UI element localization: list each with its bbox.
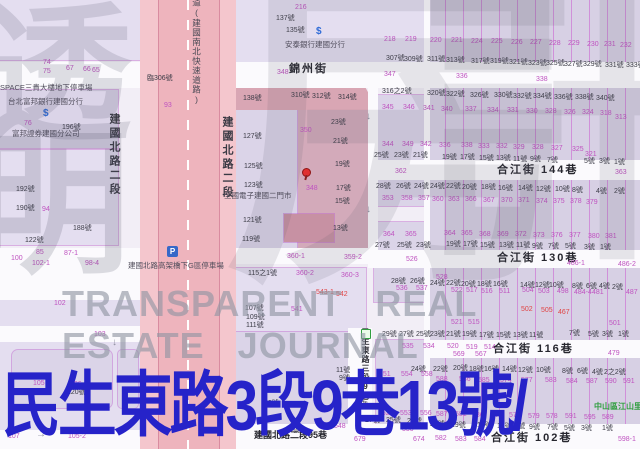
- house-number-label: 14號: [518, 185, 533, 192]
- house-number-label: 25號: [374, 152, 389, 159]
- house-number-label: 23號: [416, 242, 431, 249]
- house-number-label: 3號: [581, 425, 592, 432]
- parcel-number-label: 481: [592, 289, 604, 296]
- parcel-number-label: 344: [382, 141, 394, 148]
- parcel-number-label: 371: [518, 197, 530, 204]
- house-number-label: 12號: [536, 186, 551, 193]
- parcel-number-label: 543-1: [316, 289, 334, 296]
- house-number-label: 135號: [286, 27, 305, 34]
- parcel-number-label: 98-4: [85, 260, 99, 267]
- house-number-label: 19號: [446, 241, 461, 248]
- house-number-label: 11號: [513, 156, 527, 163]
- road-label-vertical: 道(建國南北快速道路): [192, 0, 201, 106]
- house-number-label: 336號: [554, 94, 573, 101]
- poi-label: 全國電子建國二門市: [224, 192, 292, 200]
- parcel-number-label: 221: [451, 37, 463, 44]
- direction-arrow: ↓: [366, 205, 371, 215]
- parcel-number-label: 578: [546, 413, 558, 420]
- house-number-label: 17號: [463, 241, 478, 248]
- house-number-label: 27號: [375, 242, 390, 249]
- parcel-number-label: 598-1: [618, 436, 636, 443]
- house-number-label: 4號: [596, 188, 607, 195]
- house-number-label: 1號: [614, 159, 625, 166]
- house-number-label: 138號: [243, 95, 262, 102]
- house-number-label: 7號: [547, 157, 558, 164]
- parcel-number-label: 590: [605, 378, 617, 385]
- district-label: 中山區江山里: [594, 403, 640, 411]
- house-number-label: 17號: [479, 332, 494, 339]
- house-number-label: 322號: [446, 91, 465, 98]
- parcel-number-label: 331: [507, 107, 519, 114]
- parcel-number-label: 376: [551, 232, 563, 239]
- house-number-label: 9號: [532, 243, 543, 250]
- house-number-label: 6號: [577, 368, 588, 375]
- pushpin-icon: [301, 168, 311, 180]
- house-number-label: 190號: [16, 205, 35, 212]
- bank-dollar-icon: $: [43, 108, 49, 119]
- house-number-label: 2之2號: [604, 369, 626, 376]
- house-number-label: 338號: [575, 94, 594, 101]
- parcel-number-label: 467: [558, 309, 570, 316]
- parcel-number-label: 579: [528, 413, 540, 420]
- parcel-number-label: 353: [382, 195, 394, 202]
- parcel-number-label: 337: [465, 106, 477, 113]
- parcel-number-label: 364: [444, 230, 456, 237]
- parcel-number-label: 348: [306, 185, 318, 192]
- house-number-label: 23號: [331, 119, 346, 126]
- parcel-number-label: 541: [291, 306, 303, 313]
- house-number-label: 326號: [470, 92, 489, 99]
- house-number-label: 119號: [242, 236, 260, 243]
- parcel-number-label: 220: [430, 37, 442, 44]
- house-number-label: 22號: [446, 183, 461, 190]
- house-number-label: 310號: [291, 92, 310, 99]
- parcel-number-label: 330: [526, 108, 538, 115]
- parcel-number-label: 326: [564, 109, 576, 116]
- parcel-number-label: 350: [300, 127, 312, 134]
- parcel-number-label: 358: [401, 195, 413, 202]
- house-number-label: 3號: [599, 158, 610, 165]
- parcel-number-label: 370: [501, 197, 513, 204]
- parcel-number-label: 368: [479, 231, 491, 238]
- house-number-label: 314號: [338, 94, 357, 101]
- parcel-number-label: 486-2: [618, 261, 636, 268]
- house-number-label: 316之2號: [382, 88, 412, 95]
- house-number-label: 317號: [471, 58, 490, 65]
- house-number-label: 107號: [245, 305, 264, 312]
- parcel-number-label: 225: [491, 38, 503, 45]
- house-number-label: 19號: [442, 154, 457, 161]
- parcel-number-label: 360: [432, 196, 444, 203]
- house-number-label: 313號: [446, 57, 465, 64]
- parcel-number-label: 369: [497, 231, 509, 238]
- parcel-number-label: 589: [602, 414, 614, 421]
- house-number-label: 323號: [528, 60, 547, 67]
- house-number-label: 15號: [496, 332, 511, 339]
- parcel-number-label: 345: [382, 104, 394, 111]
- map-canvas[interactable]: 7475676665SPACE三貴大樓地下停車場台北富邦銀行建國分行76196號…: [0, 0, 640, 449]
- parcel-number-label: 381: [605, 233, 617, 240]
- parcel-number-label: 357: [418, 195, 430, 202]
- house-number-label: 192號: [16, 186, 35, 193]
- house-number-label: 1號: [600, 244, 611, 251]
- house-number-label: 3號: [584, 244, 595, 251]
- parking-icon: P: [167, 246, 178, 257]
- house-number-label: 16號: [498, 185, 513, 192]
- house-number-label: 8號: [562, 368, 573, 375]
- house-number-label: 109號: [246, 314, 265, 321]
- parcel-number-label: 503: [538, 288, 550, 295]
- parcel-number-label: 102-1: [32, 260, 50, 267]
- house-number-label: 5號: [564, 425, 575, 432]
- parcel-number-label: 318: [600, 110, 612, 117]
- house-number-label: 311號: [427, 56, 445, 63]
- house-number-label: 332號: [513, 93, 532, 100]
- parcel-number-label: 515: [468, 319, 480, 326]
- parcel-number-label: 516: [481, 288, 493, 295]
- house-number-label: 28號: [376, 183, 391, 190]
- house-number-label: 334號: [533, 93, 552, 100]
- house-number-label: 24號: [430, 280, 445, 287]
- parcel-number-label: 502: [521, 306, 533, 313]
- poi-label: 台北富邦銀行建國分行: [8, 98, 83, 106]
- house-number-label: 10號: [555, 186, 570, 193]
- parcel-number-label: 93: [164, 102, 172, 109]
- lane-marker-icon: [361, 329, 371, 339]
- house-number-label: 23號: [430, 331, 445, 338]
- parcel-number-label: 587: [586, 378, 598, 385]
- house-number-label: 7號: [547, 424, 558, 431]
- house-number-label: 327號: [564, 61, 583, 68]
- parcel-number-label: 366: [465, 196, 477, 203]
- parcel-number-label: 363: [448, 196, 460, 203]
- parcel-number-label: 66: [83, 66, 91, 73]
- parcel-number-label: 542: [336, 291, 348, 298]
- parcel-number-label: 349: [402, 141, 414, 148]
- parcel-number-label: 340: [441, 106, 453, 113]
- parcel-number-label: 321: [585, 151, 597, 158]
- parcel-number-label: 359-2: [344, 254, 362, 261]
- parcel-number-label: 511: [499, 288, 510, 295]
- parcel-number-label: 65: [92, 67, 100, 74]
- poi-label: 安泰銀行建國分行: [285, 41, 345, 49]
- parcel-number-label: 347: [384, 71, 396, 78]
- house-number-label: 28號: [391, 278, 406, 285]
- parcel-number-label: 367: [483, 197, 495, 204]
- parcel-number-label: 325: [572, 146, 584, 153]
- direction-arrow: ↓: [112, 338, 117, 348]
- house-number-label: 13號: [333, 225, 348, 232]
- house-number-label: 333號: [626, 62, 640, 69]
- parcel-number-label: 372: [515, 231, 527, 238]
- parcel-number-label: 479: [608, 350, 620, 357]
- house-number-label: 111號: [246, 322, 264, 329]
- house-number-label: 1號: [602, 425, 613, 432]
- parcel-number-label: 336: [456, 73, 468, 80]
- house-number-label: 1號: [618, 331, 629, 338]
- parcel-number-label: 102: [54, 300, 66, 307]
- house-number-label: 188號: [73, 225, 92, 232]
- parcel-number-label: 374: [536, 198, 548, 205]
- parcel-number-label: 498: [557, 288, 569, 295]
- parcel-number-label: 379: [586, 199, 598, 206]
- house-number-label: 127號: [243, 133, 262, 140]
- parcel-number-label: 94: [42, 206, 50, 213]
- parcel-number-label: 230: [587, 41, 599, 48]
- house-number-label: 3號: [602, 331, 613, 338]
- parcel-number-label: 364: [383, 231, 395, 238]
- parcel-number-label: 595: [584, 414, 596, 421]
- house-number-label: 19號: [335, 161, 350, 168]
- parcel-number-label: 327: [551, 145, 563, 152]
- parcel-number-label: 591: [565, 413, 577, 420]
- poi-label: 富邦證券建國分公司: [12, 130, 80, 138]
- house-number-label: 15號: [480, 242, 495, 249]
- parcel-number-label: 329: [513, 144, 525, 151]
- house-number-label: 5號: [584, 158, 595, 165]
- house-number-label: 26號: [410, 278, 425, 285]
- parcel-number-label: 100: [11, 255, 23, 262]
- house-number-label: 320號: [427, 90, 446, 97]
- house-number-label: 21號: [413, 152, 428, 159]
- parcel-number-label: 226: [511, 39, 523, 46]
- parcel-number-label: 504: [522, 287, 534, 294]
- parcel-number-label: 365: [405, 231, 417, 238]
- parcel-number-label: 328: [545, 108, 557, 115]
- house-number-label: 319號: [490, 58, 509, 65]
- parcel-number-label: 528: [436, 274, 448, 281]
- house-number-label: 16號: [493, 281, 508, 288]
- house-number-label: 11號: [529, 332, 543, 339]
- parcel-number-label: 313: [615, 114, 627, 121]
- house-number-label: 123號: [244, 182, 263, 189]
- house-number-label: 17號: [460, 154, 475, 161]
- parcel-number-label: 360-1: [287, 253, 305, 260]
- parcel-number-label: 333: [478, 143, 490, 150]
- house-number-label: 21號: [446, 331, 461, 338]
- house-number-label: 17號: [336, 185, 351, 192]
- house-number-label: 15號: [479, 155, 494, 162]
- parcel-number-label: 87-1: [64, 250, 78, 257]
- parcel-number-label: 341: [423, 105, 435, 112]
- parcel-number-label: 484-4: [574, 289, 592, 296]
- house-number-label: 13號: [513, 332, 528, 339]
- house-number-label: 122號: [25, 237, 44, 244]
- house-number-label: 137號: [276, 15, 295, 22]
- parcel-number-label: 373: [533, 232, 545, 239]
- house-number-label: 19號: [462, 331, 477, 338]
- parcel-number-label: 332: [496, 143, 508, 150]
- house-number-label: 10號: [536, 367, 551, 374]
- house-number-label: 309號: [404, 56, 423, 63]
- parcel-number-label: 342: [420, 141, 432, 148]
- parcel-number-label: 227: [530, 39, 542, 46]
- house-number-label: 340號: [596, 95, 615, 102]
- parcel-number-label: 334: [487, 107, 499, 114]
- parcel-number-label: 378: [570, 198, 582, 205]
- house-number-label: 329號: [583, 61, 602, 68]
- parcel-number-label: 362: [395, 168, 407, 175]
- house-number-label: 15號: [335, 198, 350, 205]
- parcel-number-label: 219: [405, 36, 417, 43]
- parcel-number-label: 522: [451, 287, 463, 294]
- house-number-label: 18號: [477, 281, 492, 288]
- house-number-label: 9號: [529, 424, 540, 431]
- parcel-number-label: 360-3: [341, 272, 359, 279]
- parcel-number-label: 338: [461, 142, 473, 149]
- parcel-number-label: 487: [626, 289, 638, 296]
- house-number-label: 22號: [446, 280, 461, 287]
- parcel-number-label: 324: [582, 109, 594, 116]
- parcel-number-label: 501: [609, 320, 621, 327]
- house-number-label: 23號: [394, 152, 409, 159]
- parcel-number-label: 584: [566, 378, 578, 385]
- house-number-label: 24號: [430, 183, 445, 190]
- house-number-label: 26號: [396, 183, 411, 190]
- parcel-number-label: 380: [588, 233, 600, 240]
- house-number-label: 9號: [530, 156, 541, 163]
- house-number-label: 25號: [416, 331, 431, 338]
- address-overlay-text: 民生東路3段9巷13號/: [2, 348, 525, 449]
- bank-dollar-icon: $: [316, 26, 322, 37]
- parcel-number-label: 328: [532, 144, 544, 151]
- house-number-label: 2號: [614, 188, 625, 195]
- street-label-vertical: 建國北路二段: [221, 116, 232, 200]
- poi-label: 建國北路高架橋下G區停車場: [128, 262, 224, 270]
- parcel-number-label: 103: [94, 331, 106, 338]
- pushpin-stem: [304, 175, 307, 180]
- parcel-number-label: 338: [536, 76, 548, 83]
- house-number-label: 121號: [243, 217, 262, 224]
- house-number-label: 321號: [509, 59, 528, 66]
- parcel-number-label: 74: [43, 59, 51, 66]
- parcel-number-label: 224: [471, 38, 483, 45]
- parcel-number-label: 591: [623, 378, 635, 385]
- street-label: 合江街 144巷: [497, 165, 578, 176]
- parcel-number-label: 377: [569, 232, 581, 239]
- house-number-label: 5號: [588, 331, 599, 338]
- house-number-label: 13號: [499, 242, 514, 249]
- parcel-number-label: 229: [568, 40, 580, 47]
- house-number-label: 臨306號: [147, 75, 173, 82]
- house-number-label: 18號: [481, 184, 496, 191]
- house-number-label: 25號: [397, 242, 412, 249]
- house-number-label: 13號: [496, 155, 511, 162]
- parcel-number-label: 216: [295, 4, 307, 11]
- house-number-label: 325號: [546, 60, 565, 67]
- house-number-label: 115之1號: [248, 270, 277, 277]
- house-number-label: 11號: [516, 242, 530, 249]
- house-number-label: 2號: [612, 284, 623, 291]
- house-number-label: 331號: [605, 62, 624, 69]
- parcel-number-label: 346: [403, 104, 415, 111]
- house-number-label: 7號: [548, 243, 559, 250]
- house-number-label: 27號: [399, 331, 414, 338]
- parcel-number-label: 228: [549, 40, 561, 47]
- parcel-number-label: 231: [604, 41, 616, 48]
- house-number-label: 20號: [462, 184, 477, 191]
- house-number-label: 125號: [244, 163, 263, 170]
- parcel-number-label: 375: [553, 198, 565, 205]
- house-number-label: 330號: [494, 92, 513, 99]
- parcel-number-label: 505: [541, 307, 553, 314]
- house-number-label: 4號: [592, 369, 603, 376]
- parcel-number-label: 360-2: [296, 270, 314, 277]
- house-number-label: 307號: [386, 55, 405, 62]
- street-label-vertical: 建國北路二段: [108, 113, 119, 197]
- parcel-number-label: 218: [384, 36, 396, 43]
- parcel-number-label: 232: [620, 42, 632, 49]
- parcel-number-label: 363: [615, 169, 627, 176]
- poi-label: SPACE三貴大樓地下停車場: [0, 84, 92, 92]
- house-number-label: 8號: [572, 187, 583, 194]
- parcel-number-label: 365: [461, 230, 473, 237]
- parcel-number-label: 76: [24, 120, 32, 127]
- house-number-label: 24號: [414, 183, 429, 190]
- parcel-number-label: 348: [277, 69, 289, 76]
- house-number-label: 21號: [333, 138, 348, 145]
- house-number-label: 29號: [382, 331, 397, 338]
- parcel-number-label: 526: [406, 256, 418, 263]
- parcel-number-label: 521: [451, 319, 463, 326]
- parcel-number-label: 85: [36, 249, 44, 256]
- house-number-label: 312號: [312, 93, 331, 100]
- house-number-label: 7號: [569, 330, 580, 337]
- direction-arrow: ↓: [366, 112, 371, 122]
- parcel-number-label: 536: [396, 285, 408, 292]
- parcel-number-label: 67: [66, 65, 74, 72]
- parcel-number-label: 583: [545, 377, 557, 384]
- parcel-number-label: 517: [466, 287, 478, 294]
- street-label: 錦州街: [289, 64, 328, 75]
- parcel-number-label: 75: [43, 68, 51, 75]
- house-number-label: 5號: [565, 243, 576, 250]
- parcel-number-label: 336: [439, 142, 451, 149]
- parcel-number-label: 486-1: [567, 260, 585, 267]
- parcel-number-label: 537: [416, 285, 428, 292]
